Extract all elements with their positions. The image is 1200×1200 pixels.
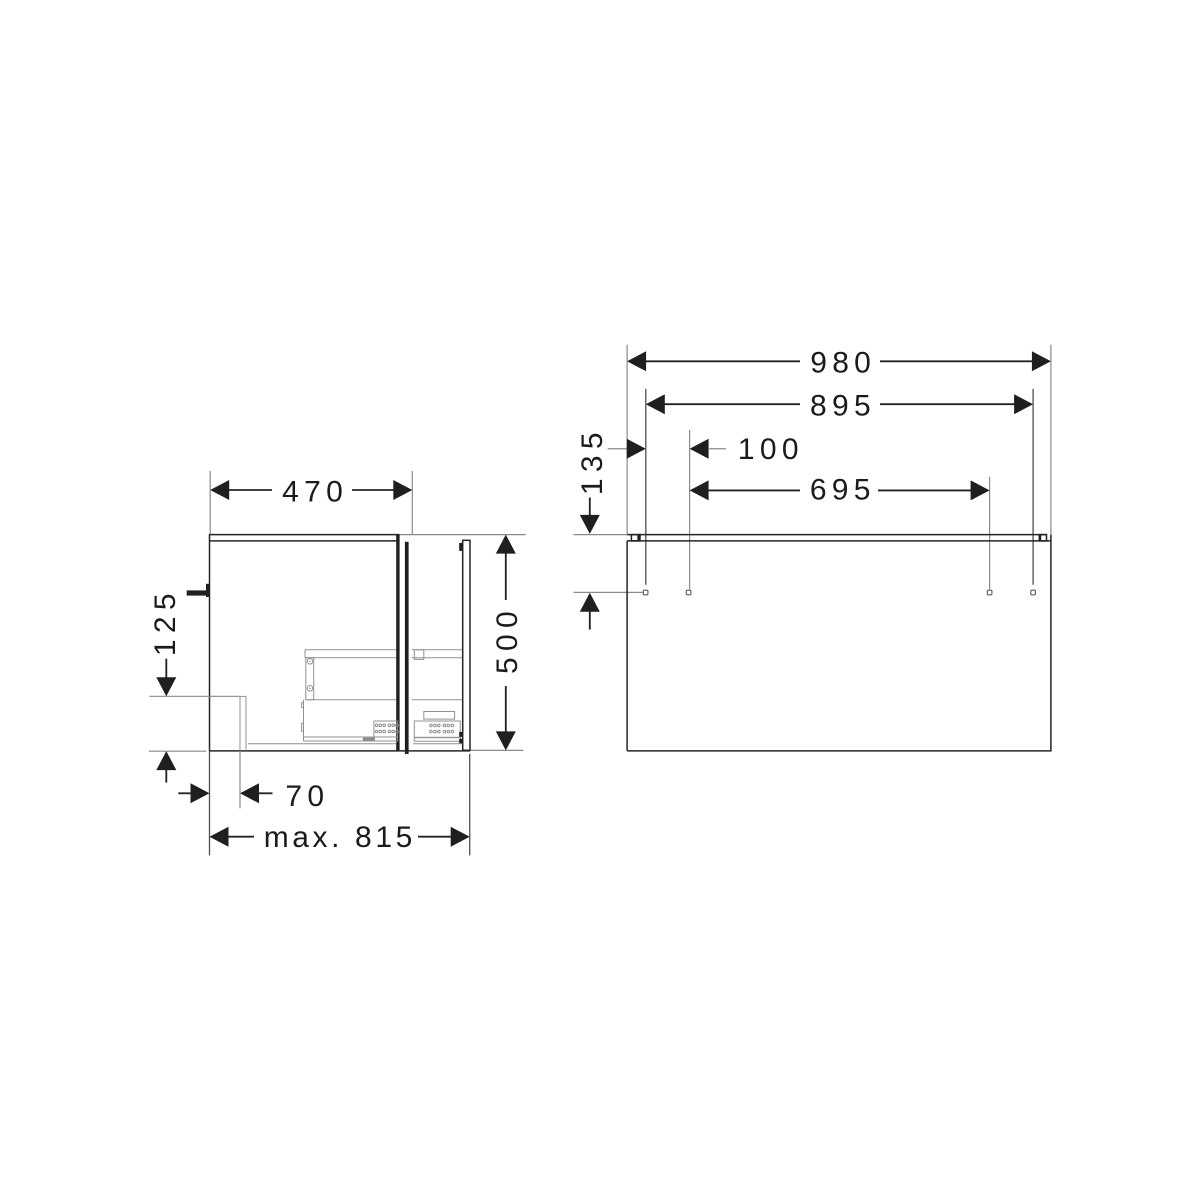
svg-text:500: 500 <box>491 605 524 674</box>
svg-text:max. 815: max. 815 <box>264 821 416 854</box>
svg-text:470: 470 <box>282 475 348 508</box>
svg-text:135: 135 <box>576 426 609 495</box>
svg-text:125: 125 <box>149 587 182 656</box>
svg-text:100: 100 <box>738 433 804 466</box>
svg-text:980: 980 <box>810 346 876 379</box>
svg-text:895: 895 <box>810 389 876 422</box>
svg-text:695: 695 <box>810 473 876 506</box>
svg-text:70: 70 <box>285 780 329 813</box>
